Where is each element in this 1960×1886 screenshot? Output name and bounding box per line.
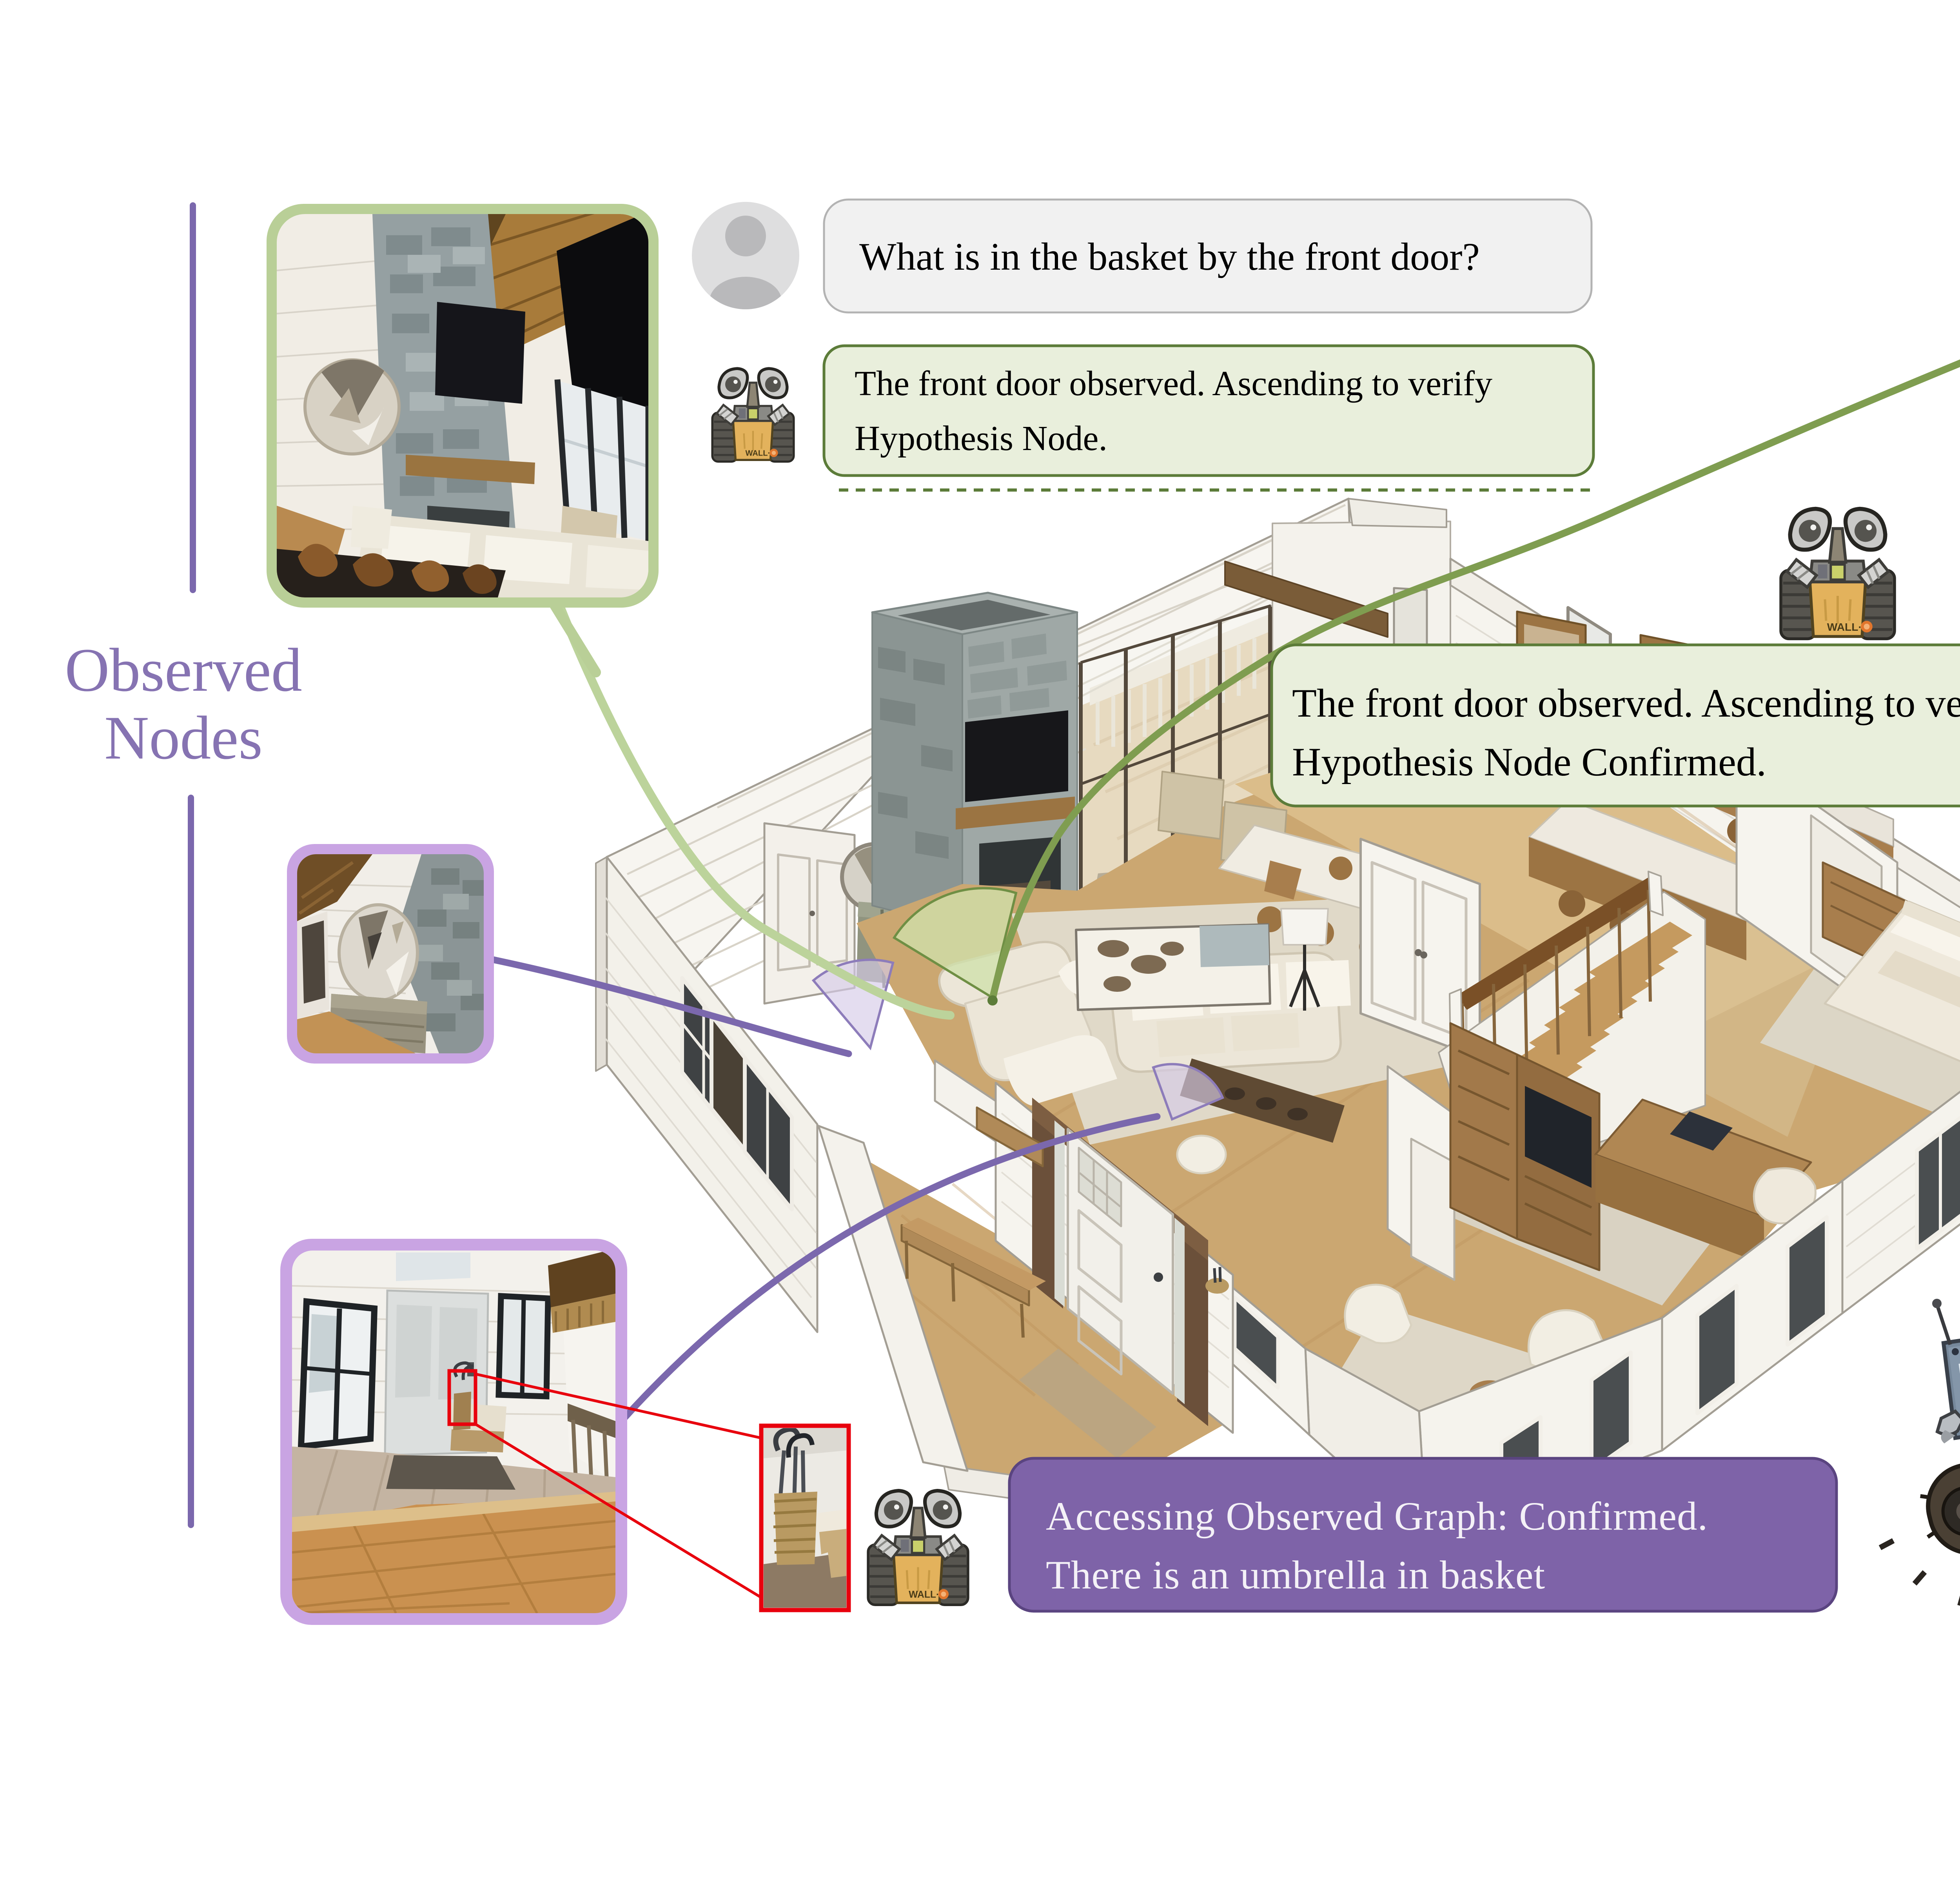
svg-text:Hypothesis Node.: Hypothesis Node.: [855, 419, 1107, 458]
svg-text:Hypothesis Node Confirmed.: Hypothesis Node Confirmed.: [1292, 740, 1766, 784]
svg-text:Nodes: Nodes: [104, 704, 263, 772]
svg-text:What is in the basket by the f: What is in the basket by the front door?: [859, 235, 1480, 278]
svg-text:The front door observed. Ascen: The front door observed. Ascending to ve…: [855, 364, 1492, 403]
svg-text:Accessing Observed Graph: Conf: Accessing Observed Graph: Confirmed.: [1046, 1494, 1708, 1539]
svg-text:The front door observed. Ascen: The front door observed. Ascending to ve…: [1292, 681, 1960, 726]
svg-text:There is an umbrella in basket: There is an umbrella in basket: [1046, 1553, 1545, 1597]
svg-text:Observed: Observed: [65, 636, 302, 704]
